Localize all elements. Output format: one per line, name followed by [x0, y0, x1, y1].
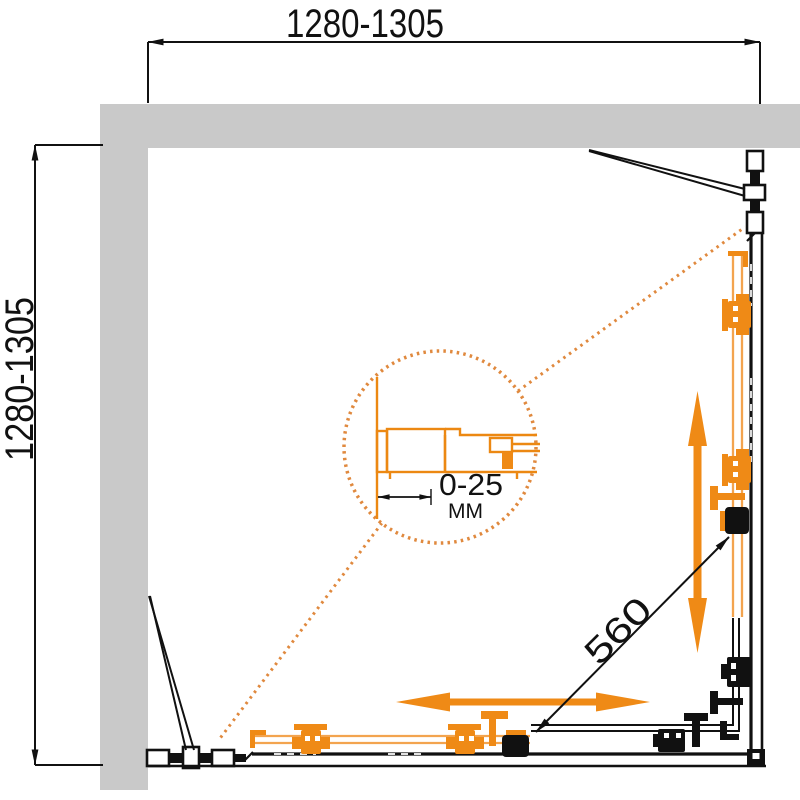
door-knob [502, 735, 529, 757]
detail-leader-line-upper [518, 227, 745, 391]
roller-bracket [727, 657, 751, 687]
exploded-glass-panel-left [149, 596, 194, 750]
door-slide-arrow-horizontal [396, 693, 650, 712]
door-handle [481, 711, 508, 719]
detail-circle [344, 351, 536, 543]
roller-bracket [446, 724, 484, 754]
door-handle [710, 486, 718, 510]
wall-top [100, 104, 800, 148]
door-slide-arrow-vertical [688, 391, 707, 653]
roller-bracket [658, 729, 685, 752]
corner-elbow-bracket [720, 734, 739, 740]
adjustment-unit-label: ММ [448, 500, 483, 523]
door-knob [725, 507, 749, 534]
diagonal-opening-dimension-label: 560 [576, 589, 660, 673]
detail-callout: 0-25 ММ [218, 227, 745, 741]
left-depth-dimension: 1280-1305 [0, 145, 103, 765]
diagram-canvas: 1280-1305 1280-1305 [0, 0, 800, 800]
shower-enclosure-plan-diagram: 1280-1305 1280-1305 [0, 0, 800, 800]
left-depth-dimension-label: 1280-1305 [0, 297, 42, 461]
top-width-dimension: 1280-1305 [148, 2, 760, 104]
wall-left [100, 104, 148, 790]
detail-leader-line-lower [218, 523, 382, 741]
adjustment-range-label: 0-25 [439, 467, 503, 502]
bottom-sliding-door [250, 711, 530, 757]
right-sliding-door [710, 251, 751, 617]
door-knob [710, 691, 718, 714]
exploded-glass-panel-top [589, 150, 745, 196]
corner-post [747, 749, 765, 767]
right-wall-profile [744, 151, 765, 233]
roller-bracket [292, 724, 330, 754]
roller-bracket [722, 449, 751, 490]
roller-bracket [722, 294, 751, 335]
door-knob [684, 713, 708, 721]
top-width-dimension-label: 1280-1305 [286, 2, 444, 46]
